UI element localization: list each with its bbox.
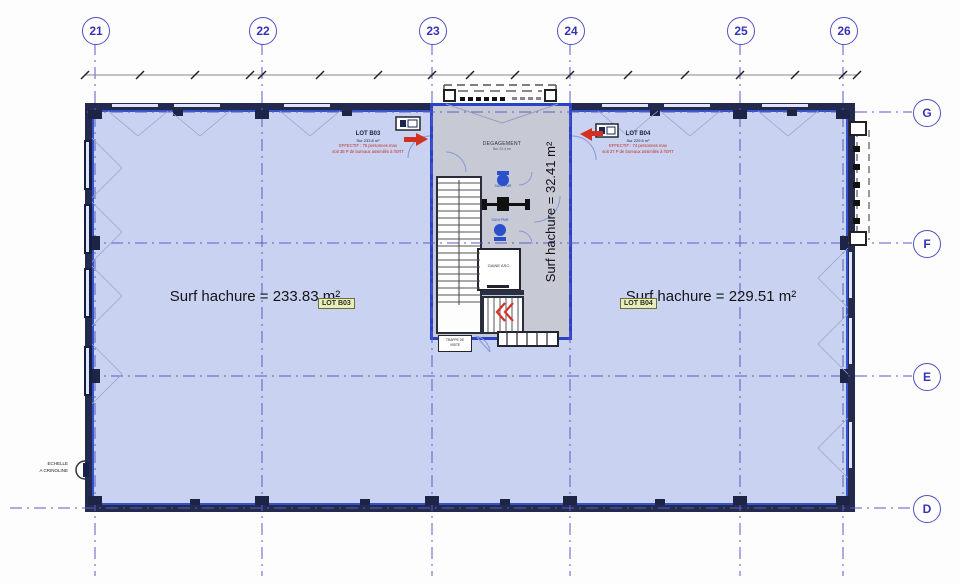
grid-bubble-g: G	[913, 99, 941, 127]
grid-bubble-24: 24	[557, 17, 585, 45]
crinoline-label: ECHELLE A CRINOLINE	[24, 461, 68, 475]
floor-plan-canvas: TRAPPE DE VISITE	[0, 0, 960, 584]
grid-bubble-25: 25	[727, 17, 755, 45]
sani-pmr-label-top: SANI PMR	[483, 184, 523, 188]
grid-bubble-d: D	[913, 495, 941, 523]
crinoline-line2: A CRINOLINE	[24, 468, 68, 475]
lot-b04-effectif2: soit 37 P de bureaux assimilés à l'ERT	[592, 149, 684, 155]
grid-label-26: 26	[837, 24, 850, 38]
lot-tag-b03: LOT B03	[318, 298, 355, 309]
lot-tag-b04: LOT B04	[620, 298, 657, 309]
grid-bubble-22: 22	[249, 17, 277, 45]
grid-bubble-e: E	[913, 363, 941, 391]
degagement-label: DEGAGEMENT Sur 22.4 m²	[470, 141, 534, 151]
sani-pmr-label-bottom: SANI PMR	[480, 218, 520, 222]
grid-label-24: 24	[564, 24, 577, 38]
degagement-area: Sur 22.4 m²	[470, 147, 534, 151]
lot-b03-effectif2: soit 38 P de bureaux assimilés à l'ERT	[322, 149, 414, 155]
hatch-label-line2: VISITE	[439, 343, 471, 348]
lot-b04-name: LOT B04	[592, 130, 684, 138]
lot-b03-header: LOT B03 Sur 233.8 m² EFFECTIF : 75 perso…	[322, 130, 414, 155]
crinoline-line1: ECHELLE	[24, 461, 68, 468]
elevator-label: GAINE ASC.	[477, 263, 521, 268]
grid-label-d: D	[923, 502, 932, 516]
grid-label-e: E	[923, 370, 931, 384]
lower-stair-flight	[482, 296, 524, 334]
grid-label-25: 25	[734, 24, 747, 38]
dimension-chain	[81, 71, 861, 79]
grid-bubble-26: 26	[830, 17, 858, 45]
grid-bubble-21: 21	[82, 17, 110, 45]
grid-label-g: G	[922, 106, 931, 120]
grid-label-f: F	[923, 237, 930, 251]
stairwell	[436, 176, 482, 334]
grid-bubble-f: F	[913, 230, 941, 258]
grid-label-22: 22	[256, 24, 269, 38]
surface-label-core: Surf hachure = 32.41 m²	[543, 92, 563, 332]
elevator-shaft	[477, 248, 521, 291]
grid-label-21: 21	[89, 24, 102, 38]
lot-b03-name: LOT B03	[322, 130, 414, 138]
cabinet-row	[497, 331, 559, 347]
grid-label-23: 23	[426, 24, 439, 38]
access-hatch-box: TRAPPE DE VISITE	[438, 335, 472, 352]
lot-b04-header: LOT B04 Sur 229.5 m² EFFECTIF : 74 perso…	[592, 130, 684, 155]
grid-bubble-23: 23	[419, 17, 447, 45]
